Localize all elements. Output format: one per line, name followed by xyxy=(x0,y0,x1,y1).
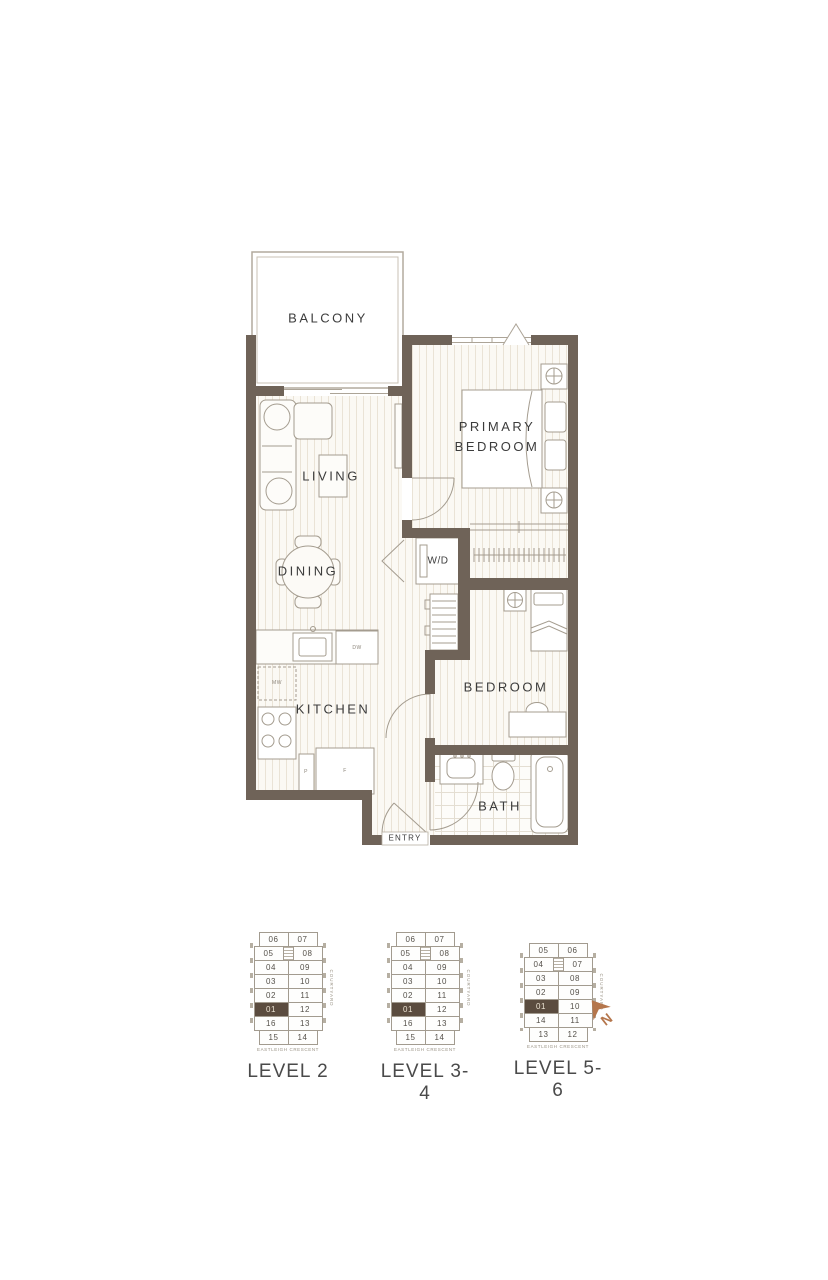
media-console-icon xyxy=(395,404,402,468)
keyplan-unit-02: 02 xyxy=(524,985,559,1000)
keyplan-unit-02: 02 xyxy=(254,988,289,1003)
kitchen-label: KITCHEN xyxy=(296,702,371,717)
keyplan-unit-01: 01 xyxy=(524,999,559,1014)
keyplan-unit-04: 04 xyxy=(254,960,289,975)
keyplan-unit-02: 02 xyxy=(391,988,426,1003)
bed-icon xyxy=(531,589,567,651)
keyplan-unit-05: 05 xyxy=(254,946,284,961)
window-marker-icon xyxy=(503,324,529,345)
keyplan-unit-09: 09 xyxy=(288,960,323,975)
keyplan-unit-16: 16 xyxy=(254,1016,289,1031)
keyplan-unit-15: 15 xyxy=(396,1030,426,1045)
keyplan-unit-09: 09 xyxy=(425,960,460,975)
keyplan-unit-11: 11 xyxy=(425,988,460,1003)
bedroom-label: BEDROOM xyxy=(464,680,549,695)
fridge-label: F xyxy=(343,768,347,774)
courtyard-label: COURTYARD xyxy=(466,969,471,1006)
dining-label: DINING xyxy=(278,564,339,579)
living-label: LIVING xyxy=(302,469,360,484)
bathtub-icon xyxy=(531,751,568,833)
keyplan-unit-12: 12 xyxy=(558,1027,588,1042)
stove-icon xyxy=(258,707,296,759)
keyplan-unit-13: 13 xyxy=(425,1016,460,1031)
keyplan-unit-05: 05 xyxy=(391,946,421,961)
keyplan-unit-12: 12 xyxy=(288,1002,323,1017)
dishwasher-label: DW xyxy=(352,645,361,651)
street-label: EASTLEIGH CRESCENT xyxy=(240,1047,336,1052)
keyplan-unit-16: 16 xyxy=(391,1016,426,1031)
keyplan-unit-06: 06 xyxy=(259,932,289,947)
keyplan-unit-06: 06 xyxy=(558,943,588,958)
nightstand-lamp-icon xyxy=(504,589,526,611)
level-label: LEVEL 5-6 xyxy=(510,1058,606,1102)
keyplan-unit-14: 14 xyxy=(288,1030,318,1045)
courtyard-label: COURTYARD xyxy=(329,969,334,1006)
vanity-sink-icon xyxy=(440,753,483,784)
keyplan-unit-12: 12 xyxy=(425,1002,460,1017)
linen-closet-icon xyxy=(425,594,458,650)
keyplan-level-2: 06070508040903100211011216131514 COURTYA… xyxy=(240,932,336,1083)
keyplan-map: 06070508040903100211011216131514 COURTYA… xyxy=(391,932,459,1044)
keyplan-unit-06: 06 xyxy=(396,932,426,947)
keyplan-map: 0506040703080209011014111312 COURTYARD xyxy=(524,943,592,1041)
keyplan-level-3-4: 06070508040903100211011216131514 COURTYA… xyxy=(377,932,473,1105)
keyplan-unit-13: 13 xyxy=(529,1027,559,1042)
keyplan-unit-08: 08 xyxy=(430,946,460,961)
street-label: EASTLEIGH CRESCENT xyxy=(510,1044,606,1049)
sliding-door-icon xyxy=(284,390,388,394)
keyplan-unit-13: 13 xyxy=(288,1016,323,1031)
keyplan-unit-10: 10 xyxy=(288,974,323,989)
balcony-label: BALCONY xyxy=(288,311,368,326)
north-letter: N xyxy=(598,1010,616,1029)
floorplan-sheet: BALCONY LIVING DINING KITCHEN W/D PRIMAR… xyxy=(0,0,828,1280)
primary-bedroom-label: PRIMARY BEDROOM xyxy=(444,417,550,457)
microwave-label: MW xyxy=(272,680,282,686)
keyplan-unit-10: 10 xyxy=(425,974,460,989)
level-label: LEVEL 3-4 xyxy=(377,1061,473,1105)
keyplan-unit-03: 03 xyxy=(254,974,289,989)
street-label: EASTLEIGH CRESCENT xyxy=(377,1047,473,1052)
keyplan-unit-08: 08 xyxy=(293,946,323,961)
pantry-label: P xyxy=(304,769,308,775)
keyplan-grid: 0506040703080209011014111312 xyxy=(524,943,592,1041)
keyplan-unit-07: 07 xyxy=(563,957,593,972)
keyplan-unit-15: 15 xyxy=(259,1030,289,1045)
keyplan-unit-01: 01 xyxy=(391,1002,426,1017)
laundry-label: W/D xyxy=(428,556,449,567)
toilet-icon xyxy=(492,752,515,790)
keyplan-unit-04: 04 xyxy=(524,957,554,972)
level-label: LEVEL 2 xyxy=(240,1061,336,1083)
keyplan-map: 06070508040903100211011216131514 COURTYA… xyxy=(254,932,322,1044)
keyplan-unit-07: 07 xyxy=(425,932,455,947)
keyplan-unit-01: 01 xyxy=(254,1002,289,1017)
keyplan-unit-14: 14 xyxy=(524,1013,559,1028)
keyplan-unit-14: 14 xyxy=(425,1030,455,1045)
keyplan-unit-09: 09 xyxy=(558,985,593,1000)
keyplan-unit-05: 05 xyxy=(529,943,559,958)
bath-label: BATH xyxy=(478,799,522,814)
keyplan-unit-03: 03 xyxy=(391,974,426,989)
keyplan-unit-11: 11 xyxy=(288,988,323,1003)
keyplan-unit-04: 04 xyxy=(391,960,426,975)
keyplan-grid: 06070508040903100211011216131514 xyxy=(391,932,459,1044)
keyplan-grid: 06070508040903100211011216131514 xyxy=(254,932,322,1044)
keyplan-unit-08: 08 xyxy=(558,971,593,986)
entry-label: ENTRY xyxy=(389,834,422,843)
keyplan-unit-07: 07 xyxy=(288,932,318,947)
keyplan-unit-03: 03 xyxy=(524,971,559,986)
